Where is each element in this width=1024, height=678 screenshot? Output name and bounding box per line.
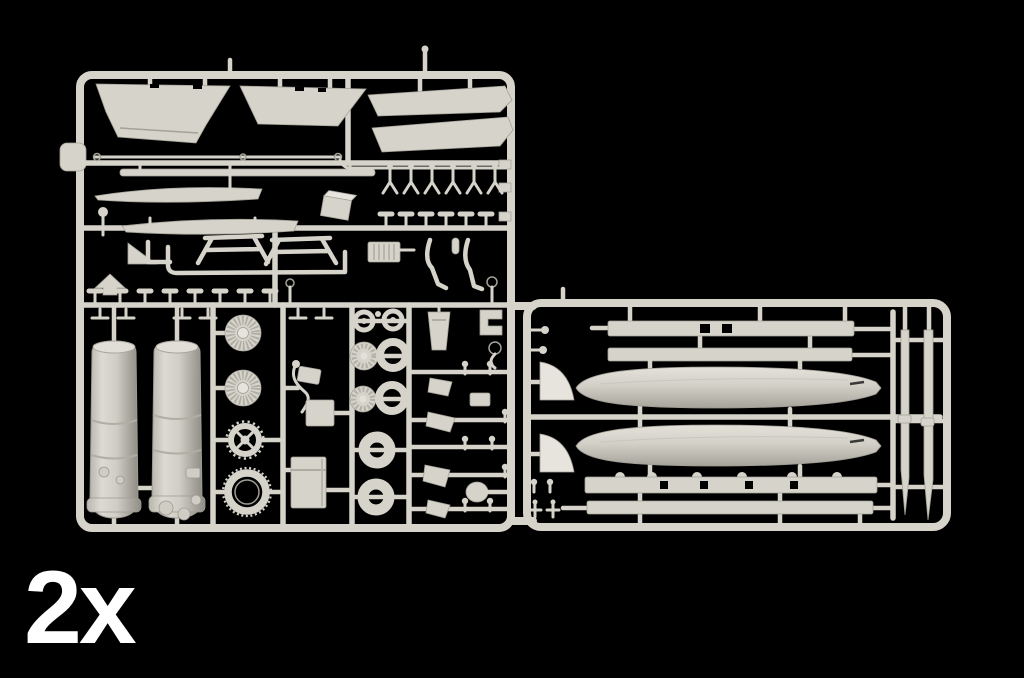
- wheel-hub-ribbed-1: [350, 342, 378, 370]
- turbine-fan-disc-1: [225, 315, 261, 351]
- turbine-fan-disc-2: [225, 370, 261, 406]
- pylon-strip-3: [585, 477, 877, 493]
- sprue-photo: [0, 0, 1024, 678]
- pylon-strip-2: [608, 348, 852, 361]
- quantity-label: 2x: [24, 556, 134, 660]
- drop-tank-2: [576, 425, 881, 466]
- drop-tank-1: [576, 367, 881, 408]
- antenna-probe-rod: [120, 169, 375, 176]
- pylon-strip-4: [587, 501, 873, 514]
- seat-bucket-part: [428, 312, 450, 350]
- molding-tab: [60, 143, 86, 171]
- wheel-hub-ribbed-2: [350, 386, 376, 412]
- photo-stage: 2x: [0, 0, 1024, 678]
- engine-exhaust-nozzle-1: [87, 341, 141, 518]
- engine-exhaust-nozzle-2: [149, 341, 205, 520]
